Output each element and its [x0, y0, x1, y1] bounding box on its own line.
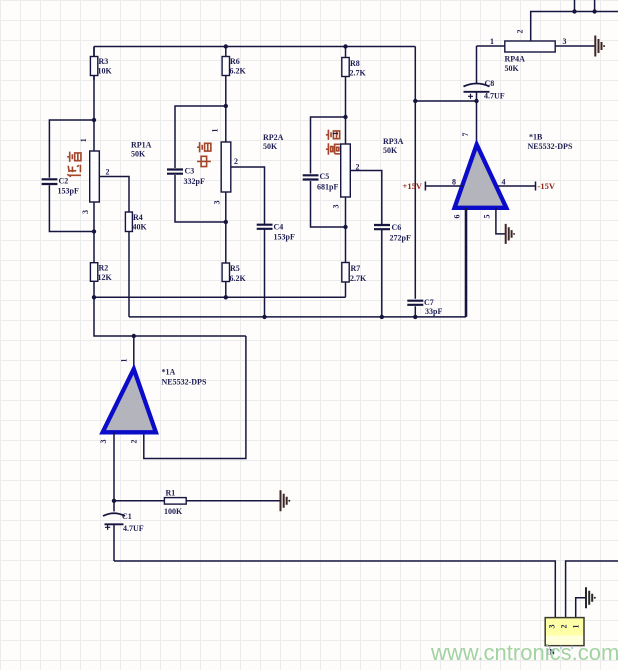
svg-text:50K: 50K — [383, 146, 398, 155]
svg-text:3: 3 — [213, 201, 222, 205]
svg-text:C3: C3 — [185, 167, 195, 176]
svg-text:12K: 12K — [98, 273, 113, 282]
svg-text:50K: 50K — [505, 64, 520, 73]
svg-text:2: 2 — [560, 625, 569, 629]
svg-text:RP4A: RP4A — [505, 55, 526, 64]
svg-text:C8: C8 — [485, 79, 495, 88]
svg-text:NE5532-DPS: NE5532-DPS — [162, 378, 207, 387]
svg-text:33pF: 33pF — [425, 307, 442, 316]
svg-text:3: 3 — [563, 37, 567, 46]
svg-text:4.7UF: 4.7UF — [484, 92, 505, 101]
svg-text:3: 3 — [99, 440, 108, 444]
svg-text:6.2K: 6.2K — [230, 67, 247, 76]
svg-text:C6: C6 — [392, 223, 402, 232]
svg-text:1: 1 — [331, 132, 340, 136]
svg-text:50K: 50K — [131, 150, 146, 159]
svg-text:1: 1 — [490, 37, 494, 46]
svg-text:C1: C1 — [122, 512, 132, 521]
svg-text:50K: 50K — [263, 142, 278, 151]
svg-text:C4: C4 — [274, 223, 284, 232]
svg-text:1: 1 — [572, 625, 581, 629]
svg-text:3: 3 — [548, 625, 557, 629]
svg-text:C7: C7 — [424, 298, 434, 307]
svg-text:40K: 40K — [133, 223, 148, 232]
svg-text:RP3A: RP3A — [383, 137, 404, 146]
svg-text:5: 5 — [483, 215, 492, 219]
svg-text:153pF: 153pF — [274, 233, 295, 242]
svg-text:272pF: 272pF — [390, 234, 411, 243]
svg-text:+15V: +15V — [403, 181, 423, 191]
svg-text:2.7K: 2.7K — [350, 274, 367, 283]
svg-text:R3: R3 — [99, 57, 109, 66]
svg-text:6: 6 — [453, 215, 462, 219]
svg-text:100K: 100K — [164, 507, 183, 516]
svg-text:R4: R4 — [133, 213, 143, 222]
svg-text:R1: R1 — [166, 489, 176, 498]
svg-text:NE5532-DPS: NE5532-DPS — [528, 142, 573, 151]
svg-text:RP1A: RP1A — [131, 141, 152, 150]
svg-text:2: 2 — [106, 168, 110, 177]
svg-text:R2: R2 — [99, 264, 109, 273]
svg-text:2: 2 — [234, 157, 238, 166]
svg-text:C2: C2 — [59, 177, 69, 186]
svg-text:R7: R7 — [351, 264, 361, 273]
svg-text:10K: 10K — [98, 67, 113, 76]
svg-text:6.2K: 6.2K — [230, 274, 247, 283]
svg-text:2: 2 — [516, 30, 525, 34]
svg-text:www.cntronics.com: www.cntronics.com — [430, 640, 618, 665]
svg-text:7: 7 — [461, 133, 470, 137]
svg-text:3: 3 — [332, 205, 341, 209]
svg-text:2: 2 — [130, 440, 139, 444]
svg-text:3: 3 — [81, 210, 90, 214]
svg-text:-15V: -15V — [538, 181, 556, 191]
svg-text:R6: R6 — [230, 57, 240, 66]
svg-text:*1B: *1B — [529, 133, 543, 142]
svg-text:*1A: *1A — [162, 368, 176, 377]
svg-text:4.7UF: 4.7UF — [123, 524, 144, 533]
svg-text:RP2A: RP2A — [263, 133, 284, 142]
svg-text:153pF: 153pF — [58, 187, 79, 196]
svg-text:1: 1 — [79, 138, 88, 142]
svg-text:2.7K: 2.7K — [350, 69, 367, 78]
svg-text:C5: C5 — [320, 172, 330, 181]
svg-text:332pF: 332pF — [184, 177, 205, 186]
svg-text:1: 1 — [119, 359, 128, 363]
svg-text:1: 1 — [211, 129, 220, 133]
svg-text:R5: R5 — [230, 264, 240, 273]
svg-text:681pF: 681pF — [317, 183, 338, 192]
svg-text:R8: R8 — [350, 59, 360, 68]
